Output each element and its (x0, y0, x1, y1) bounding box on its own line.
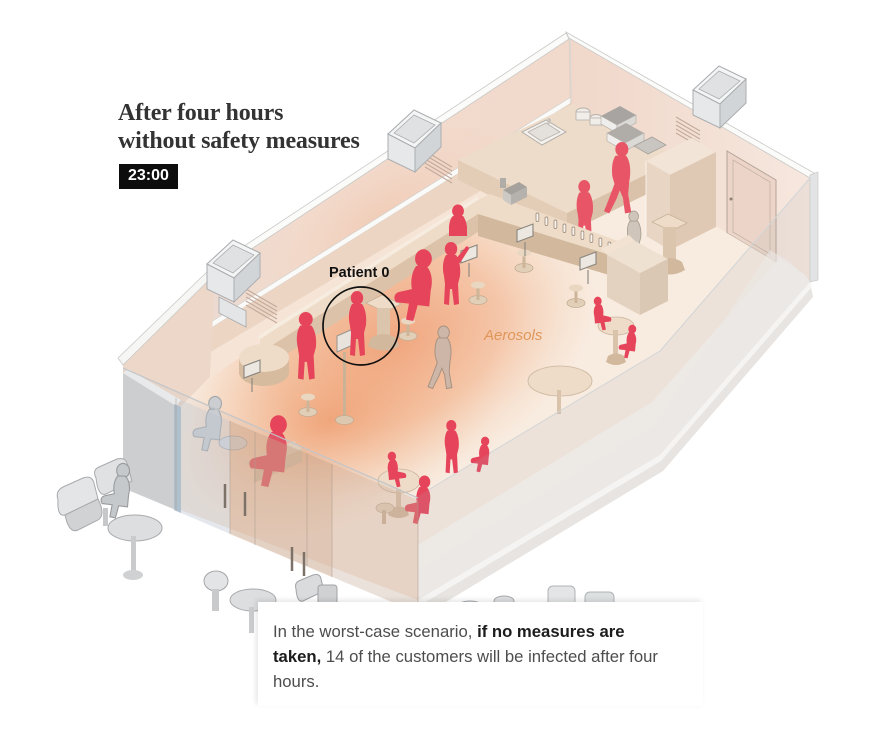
svg-text:Patient 0: Patient 0 (329, 265, 389, 281)
svg-text:Aerosols: Aerosols (483, 327, 543, 344)
